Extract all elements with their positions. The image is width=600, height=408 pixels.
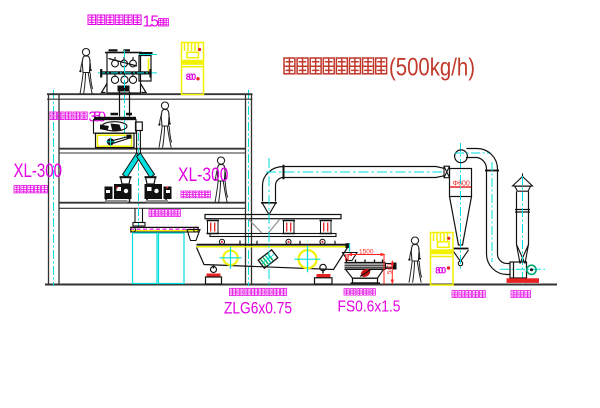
svg-text:ZLG6x0.75: ZLG6x0.75 bbox=[224, 300, 292, 318]
svg-text:(500kg/h): (500kg/h) bbox=[389, 54, 475, 82]
svg-text:Φ600: Φ600 bbox=[453, 181, 470, 188]
svg-text:540: 540 bbox=[388, 263, 394, 274]
svg-text:1.5: 1.5 bbox=[143, 14, 160, 31]
svg-text:XL-300: XL-300 bbox=[178, 165, 229, 186]
svg-text:800: 800 bbox=[435, 266, 446, 276]
svg-text:FS0.6x1.5: FS0.6x1.5 bbox=[338, 299, 401, 316]
svg-text:800: 800 bbox=[186, 72, 197, 82]
svg-text:XL-300: XL-300 bbox=[14, 161, 63, 182]
svg-text:1500: 1500 bbox=[359, 249, 374, 256]
